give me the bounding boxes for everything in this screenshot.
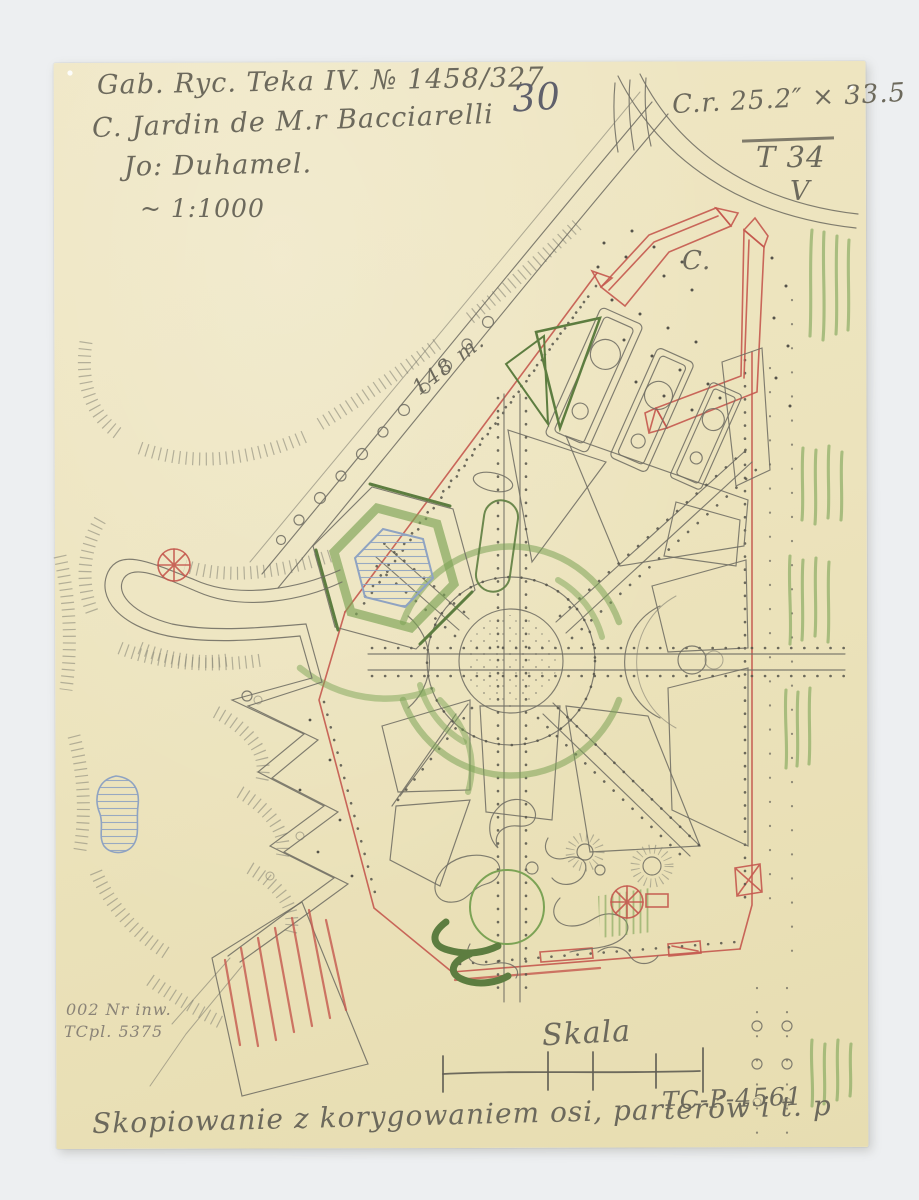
inventory-number-line2: TCpl. 5375 bbox=[64, 1022, 163, 1041]
author-name: Jo: Duhamel. bbox=[124, 148, 313, 182]
inventory-number-line1: 002 Nr inw. bbox=[66, 1000, 172, 1019]
page-number: 30 bbox=[511, 74, 563, 120]
check-mark: V bbox=[790, 176, 811, 207]
scan-backdrop: Gab. Ryc. Teka IV. № 1458/327 C. Jardin … bbox=[0, 0, 919, 1200]
drawing-paper-sheet bbox=[54, 61, 869, 1149]
scale-note: ~ 1:1000 bbox=[140, 194, 265, 223]
section-label: C. bbox=[682, 246, 711, 276]
scale-label: Skala bbox=[541, 1014, 632, 1054]
portfolio-number: T 34 bbox=[756, 140, 825, 174]
